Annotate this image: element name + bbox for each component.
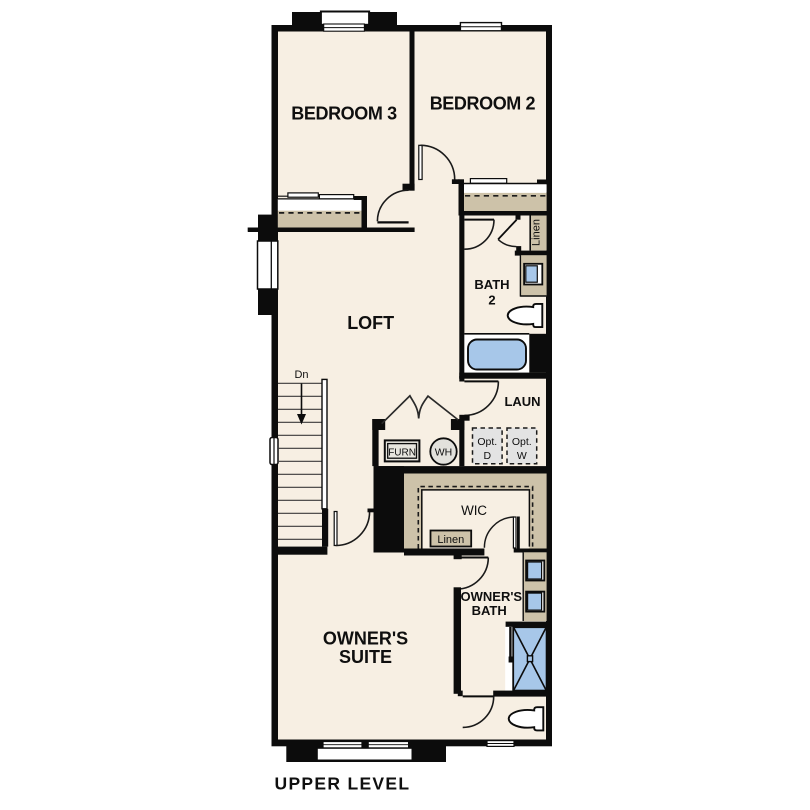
svg-text:Opt.: Opt. bbox=[512, 436, 532, 448]
svg-text:UPPER LEVEL: UPPER LEVEL bbox=[275, 774, 411, 794]
svg-text:BATH: BATH bbox=[472, 603, 507, 618]
svg-text:Linen: Linen bbox=[531, 219, 543, 246]
svg-text:WIC: WIC bbox=[461, 503, 487, 518]
svg-text:Opt.: Opt. bbox=[477, 436, 497, 448]
svg-text:BATH: BATH bbox=[474, 277, 509, 292]
svg-text:LAUN: LAUN bbox=[504, 394, 540, 409]
svg-text:OWNER'S: OWNER'S bbox=[323, 629, 408, 649]
svg-text:2: 2 bbox=[488, 292, 495, 307]
svg-text:D: D bbox=[484, 450, 492, 462]
svg-text:Dn: Dn bbox=[294, 369, 308, 381]
svg-text:BEDROOM 3: BEDROOM 3 bbox=[291, 104, 397, 124]
svg-text:FURN: FURN bbox=[388, 447, 416, 458]
svg-text:SUITE: SUITE bbox=[339, 647, 392, 667]
svg-text:OWNER'S: OWNER'S bbox=[461, 589, 523, 604]
svg-text:WH: WH bbox=[435, 447, 453, 459]
svg-text:LOFT: LOFT bbox=[347, 313, 394, 333]
svg-text:Linen: Linen bbox=[437, 534, 464, 546]
svg-text:W: W bbox=[517, 450, 527, 462]
svg-text:BEDROOM 2: BEDROOM 2 bbox=[430, 94, 536, 114]
